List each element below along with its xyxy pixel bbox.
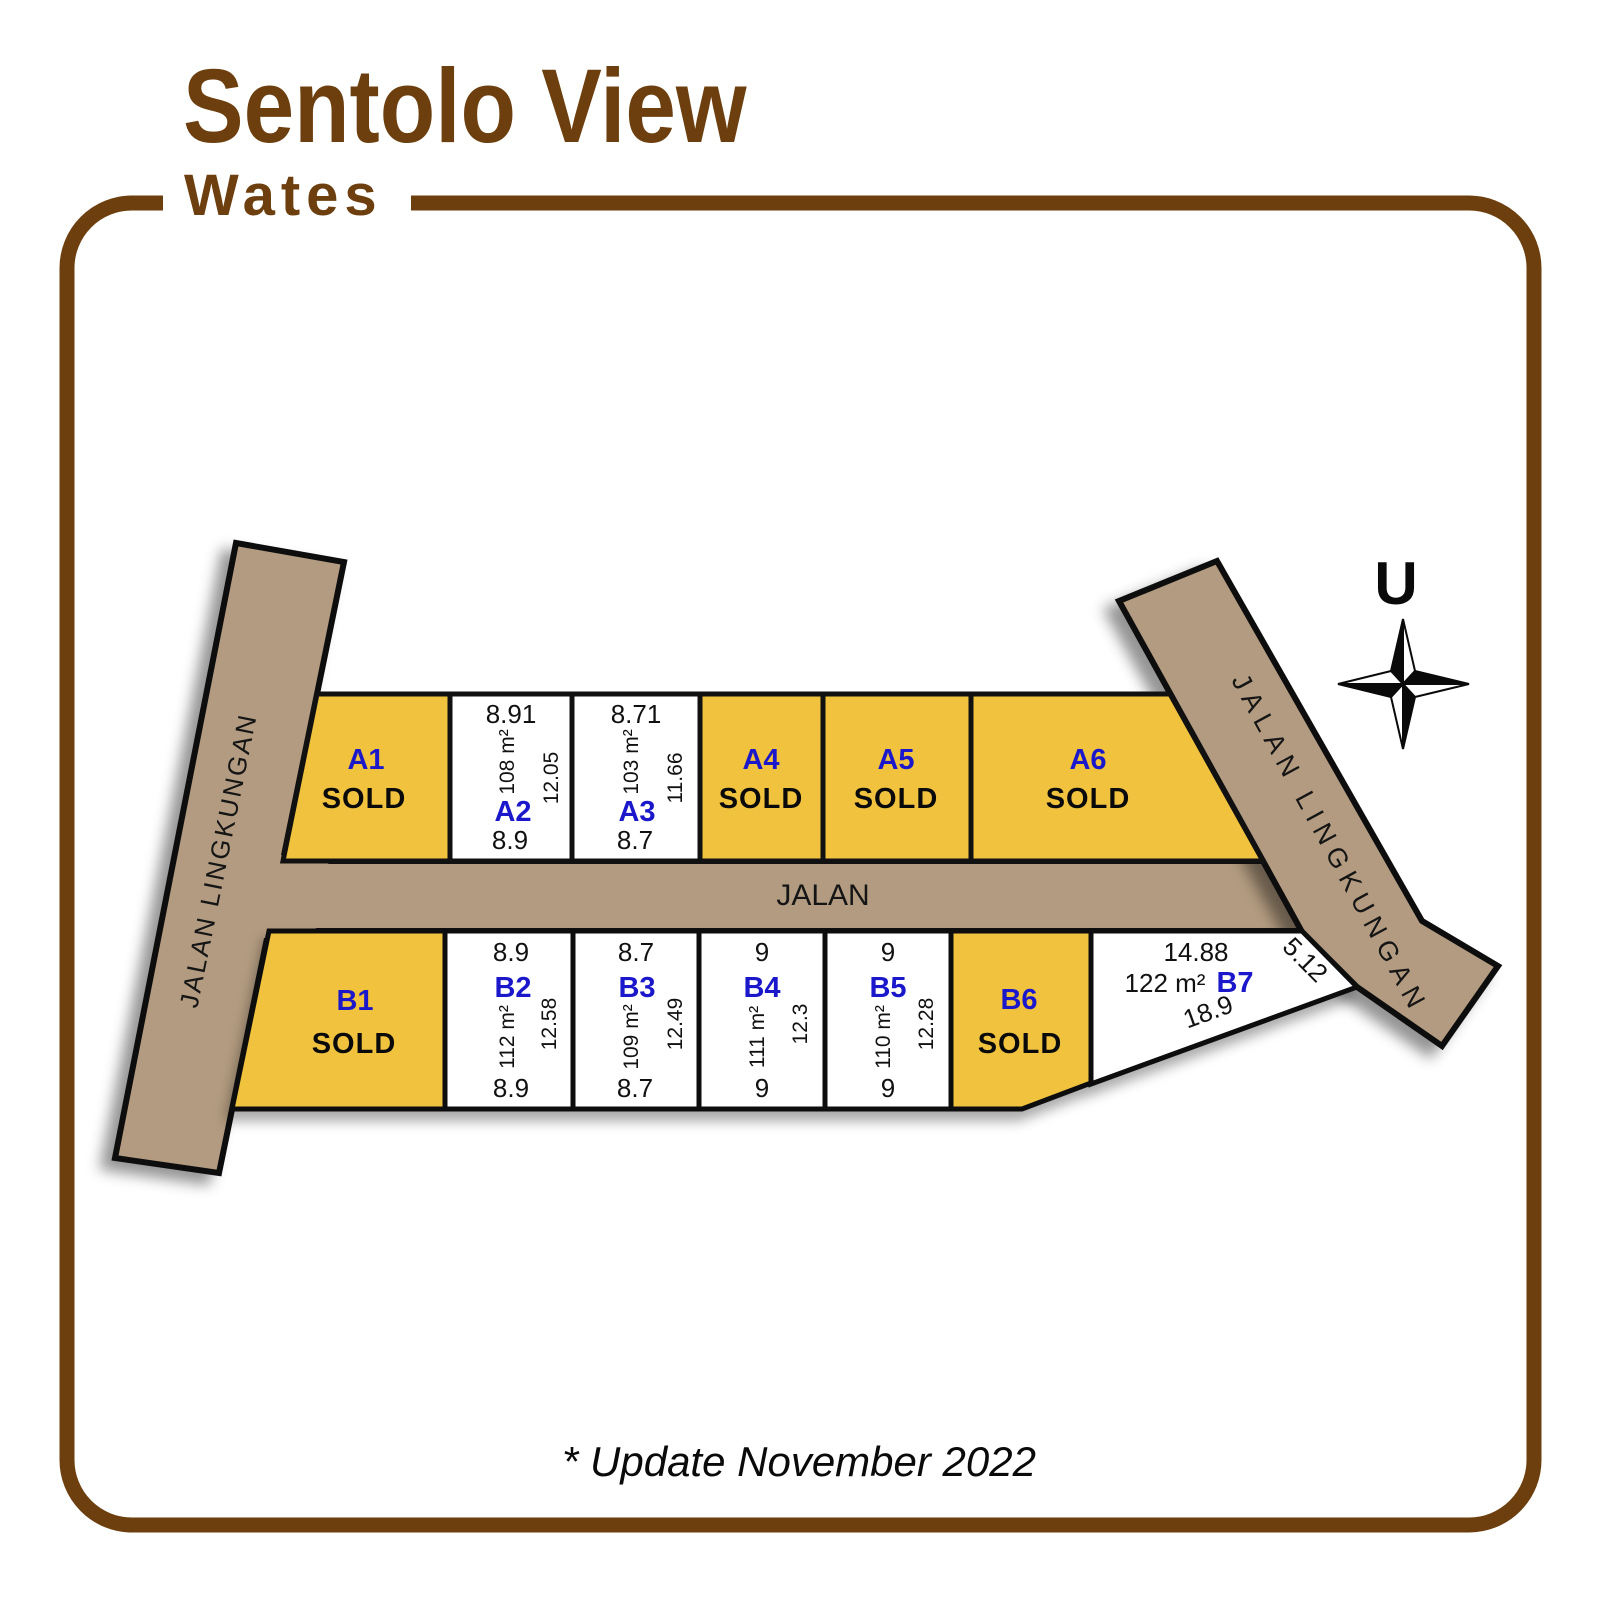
- svg-text:12.28: 12.28: [915, 998, 938, 1051]
- svg-text:B4: B4: [743, 972, 780, 1004]
- svg-text:109 m²: 109 m²: [620, 1004, 643, 1069]
- svg-text:103 m²: 103 m²: [620, 729, 643, 794]
- svg-text:9: 9: [755, 1073, 769, 1103]
- svg-text:8.7: 8.7: [617, 825, 653, 855]
- svg-text:Wates: Wates: [184, 163, 383, 228]
- svg-text:108 m²: 108 m²: [496, 729, 519, 794]
- svg-text:12.49: 12.49: [664, 998, 687, 1051]
- svg-text:9: 9: [755, 937, 769, 967]
- svg-text:SOLD: SOLD: [312, 1028, 397, 1060]
- svg-text:A2: A2: [494, 796, 531, 828]
- svg-text:110 m²: 110 m²: [872, 1005, 895, 1069]
- svg-text:111 m²: 111 m²: [746, 1006, 769, 1068]
- svg-text:SOLD: SOLD: [322, 783, 407, 815]
- svg-text:8.91: 8.91: [486, 699, 537, 729]
- svg-text:* Update November 2022: * Update November 2022: [562, 1438, 1036, 1485]
- svg-text:SOLD: SOLD: [719, 783, 804, 815]
- svg-text:SOLD: SOLD: [1046, 783, 1131, 815]
- svg-text:8.7: 8.7: [617, 1073, 653, 1103]
- svg-text:A6: A6: [1069, 744, 1106, 776]
- svg-text:A4: A4: [742, 744, 779, 776]
- svg-text:A5: A5: [877, 744, 914, 776]
- svg-text:8.9: 8.9: [493, 937, 529, 967]
- svg-text:JALAN: JALAN: [776, 879, 869, 912]
- svg-text:8.71: 8.71: [611, 699, 662, 729]
- svg-text:SOLD: SOLD: [978, 1028, 1063, 1060]
- svg-text:B5: B5: [869, 972, 906, 1004]
- svg-text:B6: B6: [1000, 984, 1037, 1016]
- svg-text:SOLD: SOLD: [854, 783, 939, 815]
- svg-text:12.58: 12.58: [538, 998, 561, 1051]
- svg-text:112 m²: 112 m²: [496, 1005, 519, 1069]
- svg-text:11.66: 11.66: [664, 753, 687, 804]
- svg-text:122 m²: 122 m²: [1125, 968, 1206, 998]
- svg-text:12.3: 12.3: [789, 1004, 812, 1045]
- svg-text:12.05: 12.05: [540, 752, 563, 805]
- svg-text:14.88: 14.88: [1163, 937, 1228, 967]
- svg-text:B2: B2: [494, 972, 531, 1004]
- svg-text:A3: A3: [618, 796, 655, 828]
- svg-text:9: 9: [881, 937, 895, 967]
- svg-text:8.9: 8.9: [492, 825, 528, 855]
- svg-text:Sentolo View: Sentolo View: [183, 47, 747, 165]
- svg-text:8.7: 8.7: [618, 937, 654, 967]
- svg-text:B1: B1: [336, 985, 373, 1017]
- svg-text:8.9: 8.9: [493, 1073, 529, 1103]
- svg-text:9: 9: [881, 1073, 895, 1103]
- svg-text:U: U: [1374, 550, 1417, 617]
- svg-text:B3: B3: [618, 972, 655, 1004]
- svg-text:A1: A1: [347, 744, 384, 776]
